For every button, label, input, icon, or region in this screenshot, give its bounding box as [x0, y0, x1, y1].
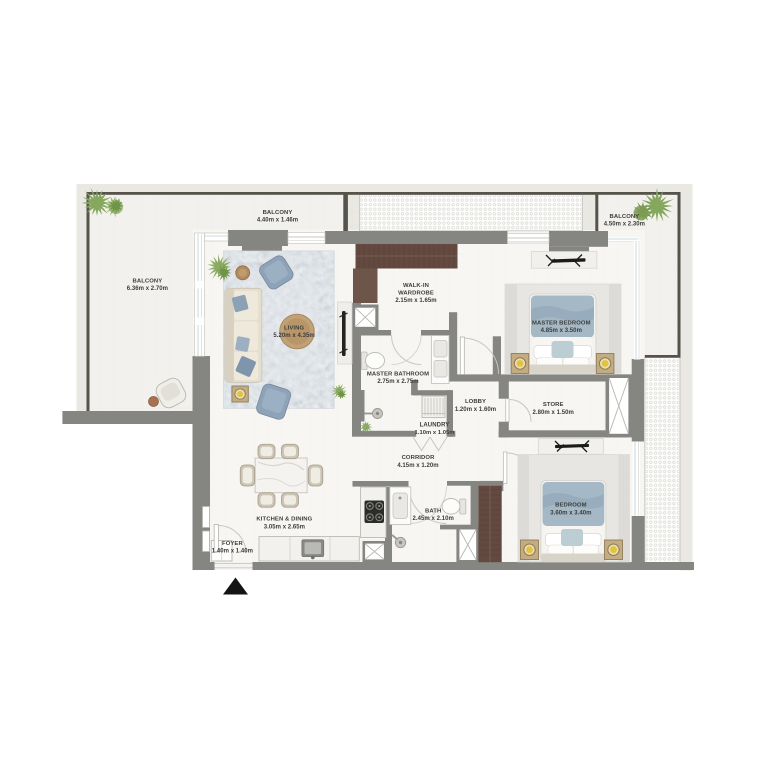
svg-text:BALCONY: BALCONY [132, 279, 162, 285]
svg-text:6.36m x 2.70m: 6.36m x 2.70m [127, 286, 168, 292]
svg-text:4.85m x 3.50m: 4.85m x 3.50m [541, 328, 582, 334]
svg-text:LOBBY: LOBBY [465, 399, 486, 405]
svg-text:2.15m x 1.65m: 2.15m x 1.65m [395, 298, 436, 304]
svg-text:CORRIDOR: CORRIDOR [402, 455, 436, 461]
svg-text:3.05m x 2.65m: 3.05m x 2.65m [264, 524, 305, 530]
svg-text:WALK-IN: WALK-IN [403, 283, 429, 289]
svg-text:4.40m x 1.46m: 4.40m x 1.46m [257, 217, 298, 223]
svg-text:3.60m x 3.40m: 3.60m x 3.40m [550, 510, 591, 516]
svg-text:2.75m x 2.75m: 2.75m x 2.75m [377, 379, 418, 385]
svg-text:1.10m x 1.05m: 1.10m x 1.05m [415, 430, 455, 436]
svg-text:2.80m x 1.50m: 2.80m x 1.50m [533, 410, 574, 416]
svg-text:FOYER: FOYER [222, 541, 243, 547]
svg-text:MASTER BATHROOM: MASTER BATHROOM [367, 371, 429, 377]
svg-text:MASTER BEDROOM: MASTER BEDROOM [532, 321, 591, 327]
svg-text:LIVING: LIVING [284, 325, 305, 331]
svg-text:1.40m x 1.40m: 1.40m x 1.40m [212, 549, 253, 555]
svg-text:STORE: STORE [543, 402, 564, 408]
svg-text:BATH: BATH [425, 509, 441, 515]
svg-text:2.45m x 2.10m: 2.45m x 2.10m [413, 516, 454, 522]
svg-text:BALCONY: BALCONY [609, 214, 639, 220]
svg-text:1.20m x 1.60m: 1.20m x 1.60m [455, 407, 496, 413]
svg-text:WARDROBE: WARDROBE [398, 290, 434, 296]
svg-text:BEDROOM: BEDROOM [555, 503, 586, 509]
svg-text:KITCHEN & DINING: KITCHEN & DINING [256, 517, 312, 523]
svg-text:BALCONY: BALCONY [263, 210, 293, 216]
svg-text:4.50m x 2.30m: 4.50m x 2.30m [604, 221, 645, 227]
svg-text:LAUNDRY: LAUNDRY [420, 422, 450, 428]
svg-text:4.15m x 1.20m: 4.15m x 1.20m [397, 463, 438, 469]
svg-text:5.20m x 4.35m: 5.20m x 4.35m [273, 333, 314, 339]
